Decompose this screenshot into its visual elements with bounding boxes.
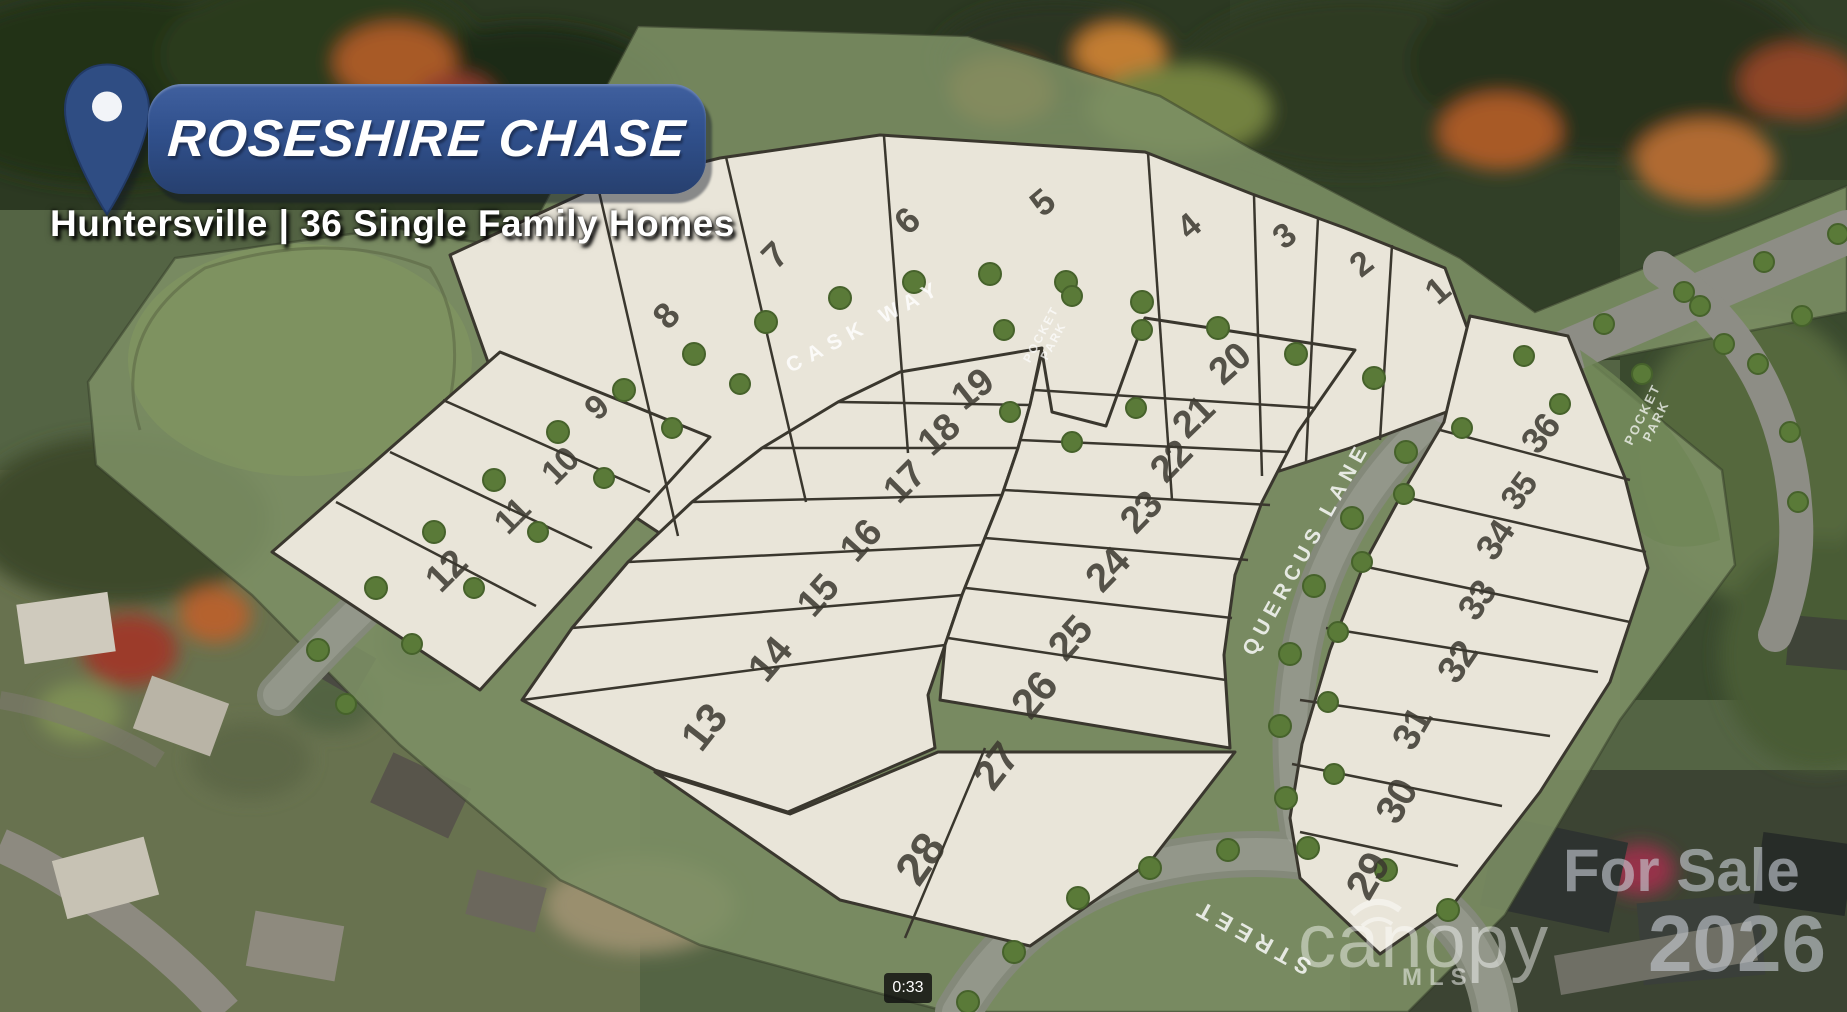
community-name-banner: ROSESHIRE CHASE <box>148 84 706 194</box>
location-pin-icon <box>62 60 152 225</box>
year-watermark: 2026 <box>1648 898 1826 990</box>
for-sale-watermark: For Sale <box>1563 836 1800 905</box>
mls-watermark-sub: MLS <box>1402 964 1474 992</box>
video-timestamp: 0:33 <box>892 979 923 997</box>
community-name: ROSESHIRE CHASE <box>166 109 688 169</box>
video-timestamp-badge: 0:33 <box>884 973 932 1003</box>
listing-subtitle: Huntersville | 36 Single Family Homes <box>50 203 735 245</box>
video-frame: 1 2 3 4 5 6 7 8 9 10 11 12 13 14 15 16 1… <box>0 0 1847 1012</box>
